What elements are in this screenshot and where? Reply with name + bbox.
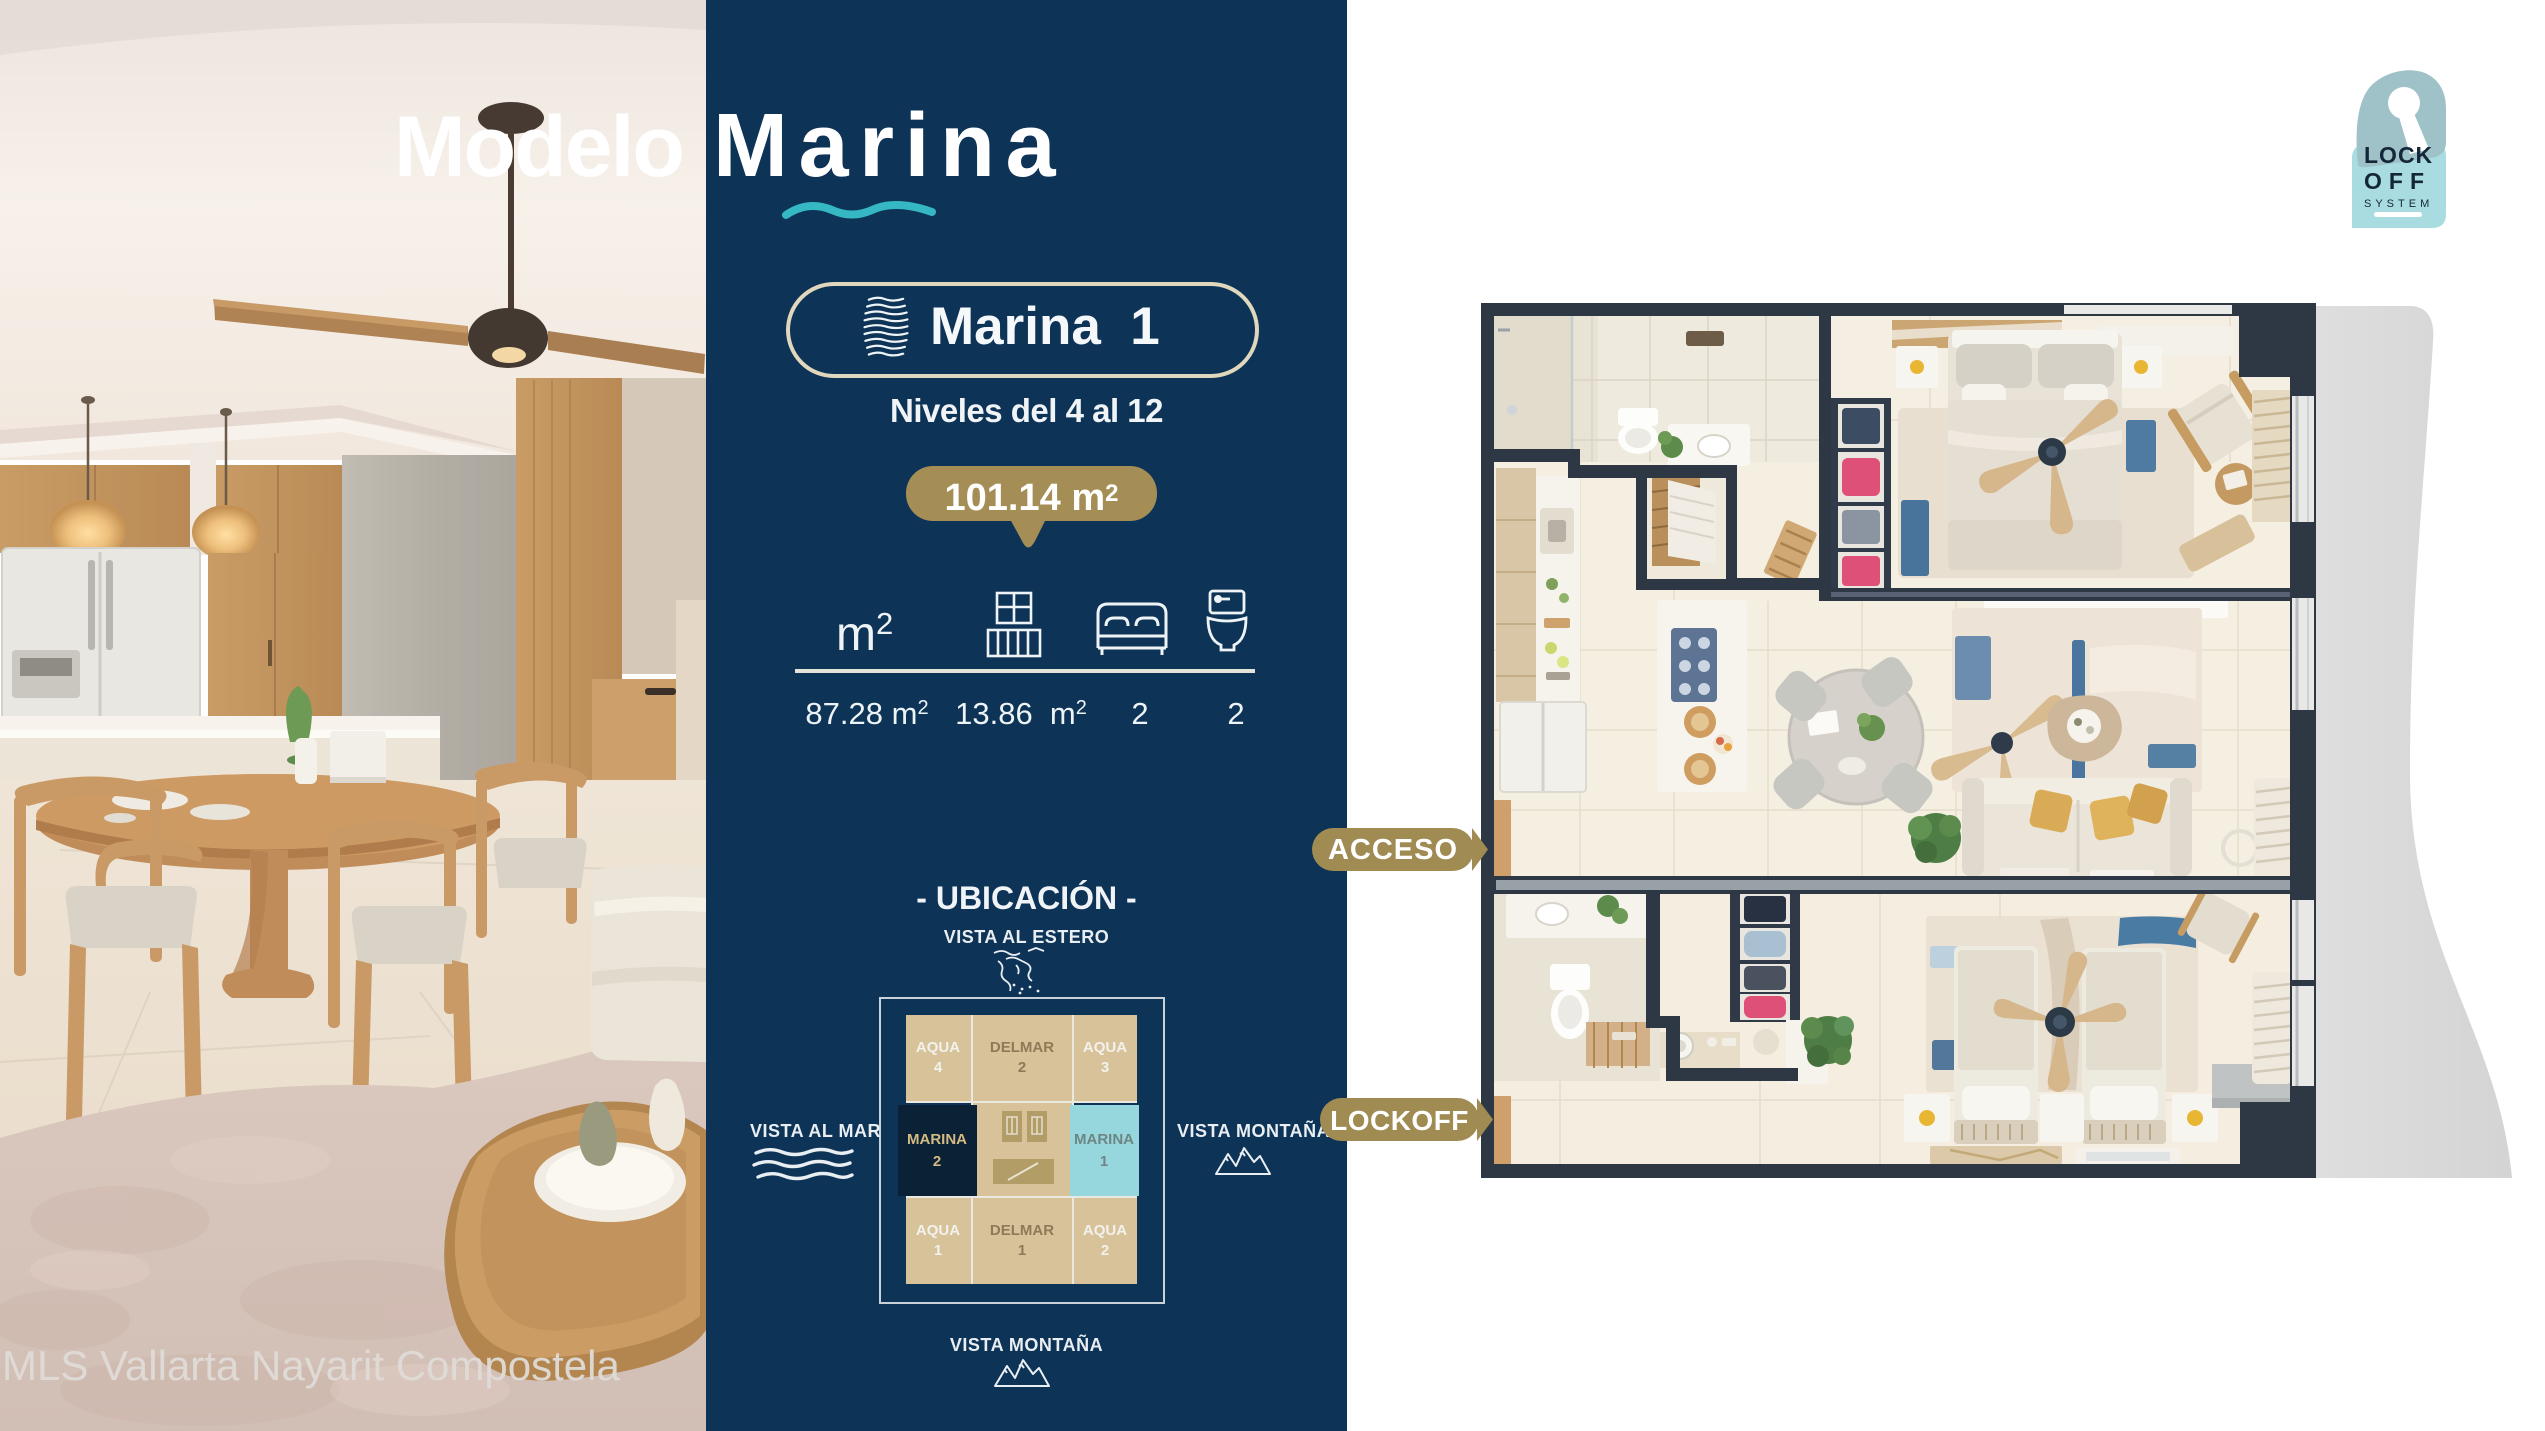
svg-text:MARINA: MARINA xyxy=(907,1131,967,1148)
svg-text:4: 4 xyxy=(934,1059,943,1076)
svg-text:LOCK: LOCK xyxy=(2364,142,2433,168)
svg-text:2: 2 xyxy=(933,1153,941,1170)
svg-text:2: 2 xyxy=(1018,1059,1026,1076)
svg-text:AQUA: AQUA xyxy=(1083,1222,1127,1239)
svg-text:3: 3 xyxy=(1101,1059,1109,1076)
svg-text:DELMAR: DELMAR xyxy=(990,1222,1054,1239)
svg-text:1: 1 xyxy=(934,1242,942,1259)
svg-text:AQUA: AQUA xyxy=(1083,1039,1127,1056)
svg-text:AQUA: AQUA xyxy=(916,1039,960,1056)
svg-text:2: 2 xyxy=(1101,1242,1109,1259)
svg-text:OFF: OFF xyxy=(2364,168,2431,194)
svg-text:SYSTEM: SYSTEM xyxy=(2364,198,2433,210)
svg-text:1: 1 xyxy=(1018,1242,1026,1259)
svg-text:AQUA: AQUA xyxy=(916,1222,960,1239)
svg-text:MARINA: MARINA xyxy=(1074,1131,1134,1148)
svg-text:DELMAR: DELMAR xyxy=(990,1039,1054,1056)
svg-text:1: 1 xyxy=(1100,1153,1108,1170)
